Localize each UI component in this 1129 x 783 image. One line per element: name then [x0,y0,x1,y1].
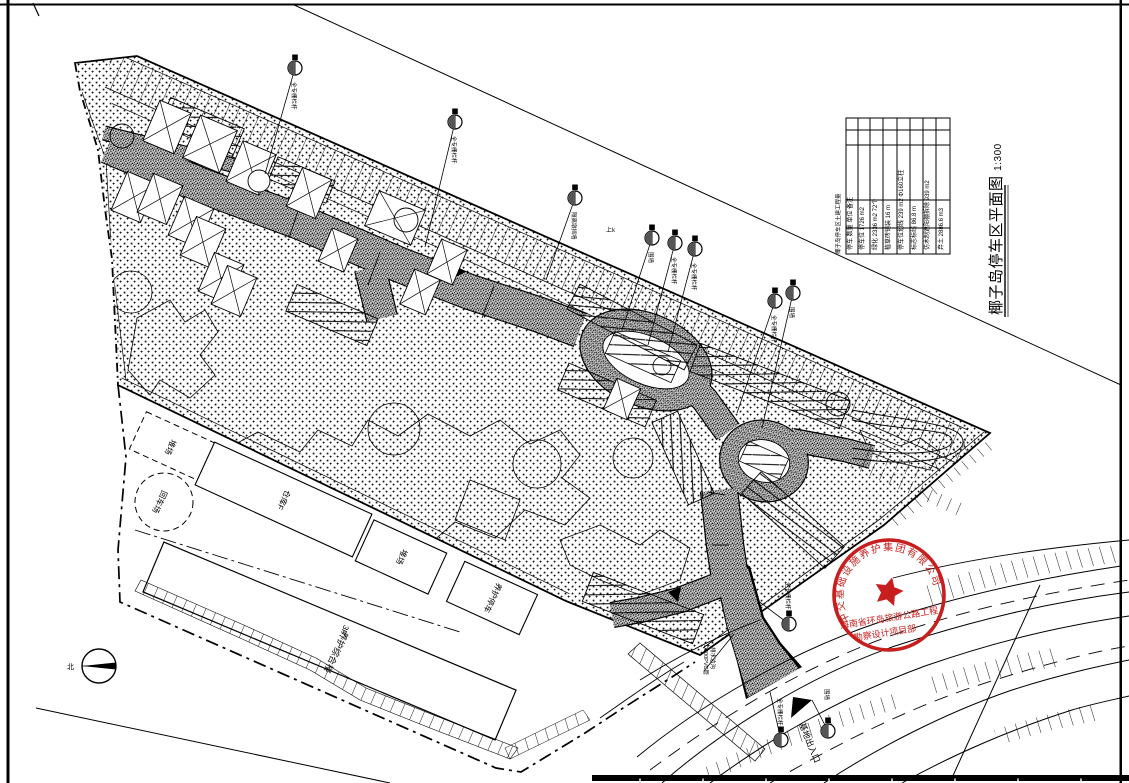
svg-text:上k: 上k [606,226,616,234]
svg-text:停车位 1726 m2: 停车位 1726 m2 [858,206,866,250]
svg-text:围墙: 围墙 [788,307,796,319]
svg-text:全专栅栏杆: 全专栅栏杆 [690,263,698,291]
svg-text:排水边沟: 排水边沟 [709,647,717,670]
svg-text:全专栅栏杆: 全专栅栏杆 [776,698,784,726]
svg-text:北: 北 [67,663,74,671]
svg-text:全专栅栏杆: 全专栅栏杆 [784,582,792,610]
svg-text:全专栅栏杆: 全专栅栏杆 [290,82,298,110]
svg-text:围墙: 围墙 [823,689,831,701]
svg-text:隔离墩挡墙: 隔离墩挡墙 [570,212,578,240]
svg-text:植草砖铺装 16 m: 植草砖铺装 16 m [884,205,892,250]
svg-text:停车位划线 239 m2 Φ160立柱: 停车位划线 239 m2 Φ160立柱 [897,170,905,250]
svg-text:仿木制遮阳棚拆除 939 m2: 仿木制遮阳棚拆除 939 m2 [923,180,931,250]
svg-text:全专栅栏杆: 全专栅栏杆 [450,136,458,164]
svg-text:围墙: 围墙 [647,252,655,264]
svg-text:D300PVC管: D300PVC管 [702,645,710,675]
svg-text:绿化 2336 m2 72个: 绿化 2336 m2 72个 [871,199,879,250]
svg-text:全专栅栏杆: 全专栅栏杆 [770,315,778,343]
svg-text:椰子岛停车区土建工程量: 椰子岛停车区土建工程量 [834,193,842,254]
svg-text:停车 数量 单位 备注: 停车 数量 单位 备注 [846,197,854,250]
svg-text:标志标线 86.8 m: 标志标线 86.8 m [910,206,918,250]
svg-text:全专栅栏杆: 全专栅栏杆 [670,257,678,285]
svg-text:弃土 2886.6 m3: 弃土 2886.6 m3 [937,207,945,250]
